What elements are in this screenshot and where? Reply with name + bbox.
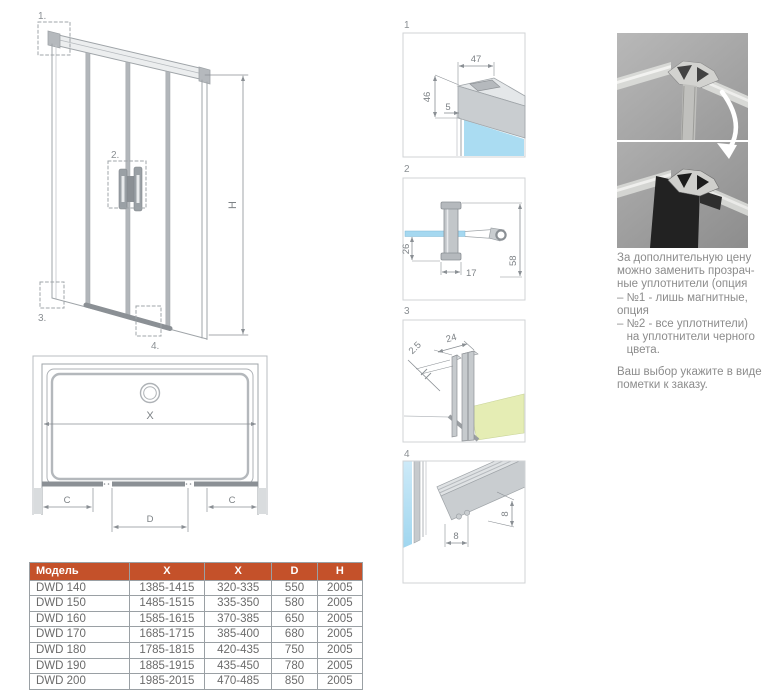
cell-d: 550	[272, 580, 317, 596]
detail-1-dim-glass: 5	[445, 102, 450, 113]
table-header-row: Модель X X D H	[30, 563, 363, 581]
cell-x2: 320-335	[204, 580, 271, 596]
table-row: DWD 170 1685-1715 385-400 680 2005	[30, 627, 363, 643]
table-row: DWD 180 1785-1815 420-435 750 2005	[30, 642, 363, 658]
cell-model: DWD 170	[30, 627, 130, 643]
front-view: 1. 2. 3. 4. H	[38, 11, 248, 352]
detail-1-drawing: 1 47 46 5	[403, 20, 525, 157]
cell-model: DWD 140	[30, 580, 130, 596]
svg-text:C: C	[64, 495, 71, 506]
seal-option-note: За дополнительную цену можно заменить пр…	[617, 252, 769, 400]
callout-label-3: 3.	[38, 313, 46, 324]
top-bar-left-cap	[48, 31, 60, 48]
cell-h: 2005	[317, 627, 362, 643]
cell-h: 2005	[317, 611, 362, 627]
detail-2-number: 2	[404, 164, 410, 175]
cell-x2: 420-435	[204, 642, 271, 658]
handle-knob	[441, 202, 461, 260]
cell-model: DWD 150	[30, 596, 130, 612]
cell-x1: 1385-1415	[129, 580, 204, 596]
col-header-model: Модель	[30, 563, 130, 581]
cell-d: 750	[272, 642, 317, 658]
height-label: H	[227, 201, 239, 209]
cell-x1: 1585-1615	[129, 611, 204, 627]
seal-photos	[610, 28, 760, 253]
detail-1-dim-height: 46	[422, 92, 433, 103]
table-row: DWD 160 1585-1615 370-385 650 2005	[30, 611, 363, 627]
door-track-bar	[42, 482, 258, 487]
top-view: X C C D	[33, 356, 267, 532]
col-header-x2: X	[204, 563, 271, 581]
height-dimension: H	[205, 75, 248, 335]
cell-model: DWD 200	[30, 674, 130, 690]
svg-text:C: C	[229, 495, 236, 506]
cell-x1: 1685-1715	[129, 627, 204, 643]
detail-4-number: 4	[404, 449, 410, 460]
cell-h: 2005	[317, 580, 362, 596]
panel-profile	[166, 71, 170, 329]
callout-label-1: 1.	[38, 11, 46, 22]
callout-label-4: 4.	[151, 341, 159, 352]
svg-text:D: D	[147, 514, 154, 525]
col-header-h: H	[317, 563, 362, 581]
panel-profile	[86, 52, 90, 308]
cell-x1: 1785-1815	[129, 642, 204, 658]
door-handle	[119, 167, 142, 211]
detail-2-dim-offset: 26	[401, 244, 412, 255]
detail-1-number: 1	[404, 20, 410, 31]
cell-model: DWD 190	[30, 658, 130, 674]
cell-x2: 435-450	[204, 658, 271, 674]
detail-4-dim-height: 8	[500, 511, 511, 516]
cell-d: 650	[272, 611, 317, 627]
cell-x2: 335-350	[204, 596, 271, 612]
technical-sheet: 1. 2. 3. 4. H	[0, 0, 781, 694]
table-row: DWD 200 1985-2015 470-485 850 2005	[30, 674, 363, 690]
cell-x1: 1985-2015	[129, 674, 204, 690]
callout-label-2: 2.	[111, 150, 119, 161]
note-paragraph-1: За дополнительную цену можно заменить пр…	[617, 252, 769, 358]
glass-panel	[403, 461, 412, 548]
cell-model: DWD 160	[30, 611, 130, 627]
detail-drawings: 1 47 46 5 2 58	[395, 10, 535, 595]
col-header-x1: X	[129, 563, 204, 581]
d-dimension: D	[112, 488, 188, 532]
detail-4-dim-width: 8	[453, 531, 458, 542]
front-and-top-view-drawing: 1. 2. 3. 4. H	[0, 0, 380, 560]
cell-x1: 1485-1515	[129, 596, 204, 612]
cell-x2: 470-485	[204, 674, 271, 690]
cell-x2: 370-385	[204, 611, 271, 627]
detail-2-drawing: 2 58 26	[401, 164, 525, 300]
top-bar-right-cap	[199, 67, 210, 84]
detail-1-dim-width: 47	[471, 54, 482, 65]
cell-d: 580	[272, 596, 317, 612]
cell-h: 2005	[317, 674, 362, 690]
cell-x2: 385-400	[204, 627, 271, 643]
cell-model: DWD 180	[30, 642, 130, 658]
photo-clear-seal	[617, 33, 748, 140]
cell-h: 2005	[317, 642, 362, 658]
cell-d: 680	[272, 627, 317, 643]
detail-2-dim-base: 17	[466, 268, 477, 279]
cell-h: 2005	[317, 596, 362, 612]
detail-4-drawing: 4 8	[403, 440, 535, 583]
detail-2-dim-total: 58	[508, 255, 519, 266]
detail-3-number: 3	[404, 306, 410, 317]
table-row: DWD 140 1385-1415 320-335 550 2005	[30, 580, 363, 596]
model-spec-table: Модель X X D H DWD 140 1385-1415 320-335…	[29, 562, 363, 690]
table-row: DWD 190 1885-1915 435-450 780 2005	[30, 658, 363, 674]
c-right-dimension: C	[207, 488, 257, 512]
cell-d: 780	[272, 658, 317, 674]
cell-h: 2005	[317, 658, 362, 674]
c-left-dimension: C	[44, 488, 94, 512]
width-x-label: X	[146, 410, 154, 422]
detail-3-drawing: 3 24 2.5	[403, 306, 525, 442]
table-row: DWD 150 1485-1515 335-350 580 2005	[30, 596, 363, 612]
cell-d: 850	[272, 674, 317, 690]
cell-x1: 1885-1915	[129, 658, 204, 674]
col-header-d: D	[272, 563, 317, 581]
note-paragraph-2: Ваш выбор укажите в виде пометки к заказ…	[617, 366, 769, 392]
